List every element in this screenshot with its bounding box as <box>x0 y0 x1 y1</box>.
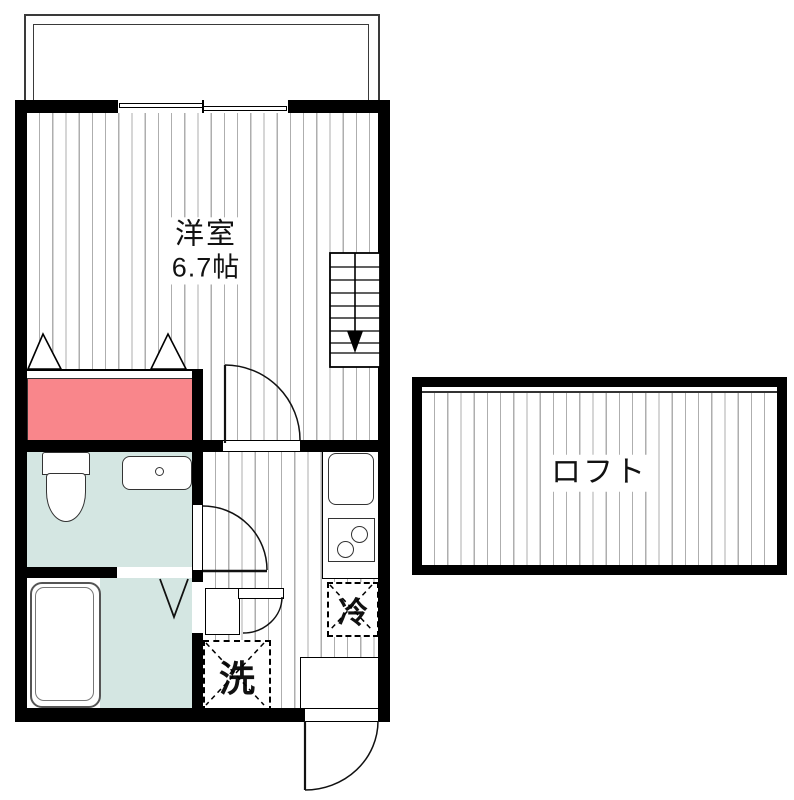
stove-burner-right <box>351 526 368 543</box>
main-room-doorway <box>223 440 300 452</box>
main-room-size: 6.7帖 <box>167 251 246 284</box>
entry-tile-area <box>300 657 379 709</box>
bath-toilet-opening <box>117 567 190 578</box>
wall-room-hall-left <box>15 440 223 452</box>
bath-door-frame <box>238 588 284 599</box>
wall-closet-stub <box>192 369 203 440</box>
bath-door-leaf <box>205 588 240 635</box>
washer-label: 洗 <box>219 650 255 702</box>
wall-west <box>15 100 27 722</box>
wall-east <box>378 100 390 722</box>
wall-hall-west-c <box>192 633 203 710</box>
washer-space: 洗 <box>203 640 271 712</box>
refrigerator-label: 冷 <box>338 588 368 632</box>
toilet-tank <box>42 452 90 475</box>
wall-south <box>15 708 305 722</box>
wall-room-hall-right <box>300 440 378 452</box>
bath-doorway <box>192 582 203 633</box>
kitchen-sink <box>328 453 374 505</box>
main-room-label: 洋室 <box>170 217 242 252</box>
wall-hall-west-a <box>192 452 203 505</box>
window-pane-right <box>203 106 287 111</box>
wall-north-right <box>288 100 390 113</box>
loft-label: ロフト <box>546 455 652 492</box>
bathtub-inner <box>35 587 94 701</box>
stove-burner-left <box>337 541 354 558</box>
window-meeting-stile <box>202 100 204 113</box>
refrigerator-space: 冷 <box>327 582 379 637</box>
window-pane-left <box>119 103 203 108</box>
vanity-faucet-dot <box>155 467 164 476</box>
entry-threshold <box>305 708 378 722</box>
toilet-doorway <box>192 505 203 570</box>
entry-door <box>305 721 378 790</box>
floor-plan: 冷 洗 <box>0 0 794 800</box>
closet-counter <box>27 378 194 442</box>
wall-north-left <box>15 100 118 113</box>
balcony-inner-outline <box>33 24 369 104</box>
wall-toilet-bath <box>15 567 117 578</box>
